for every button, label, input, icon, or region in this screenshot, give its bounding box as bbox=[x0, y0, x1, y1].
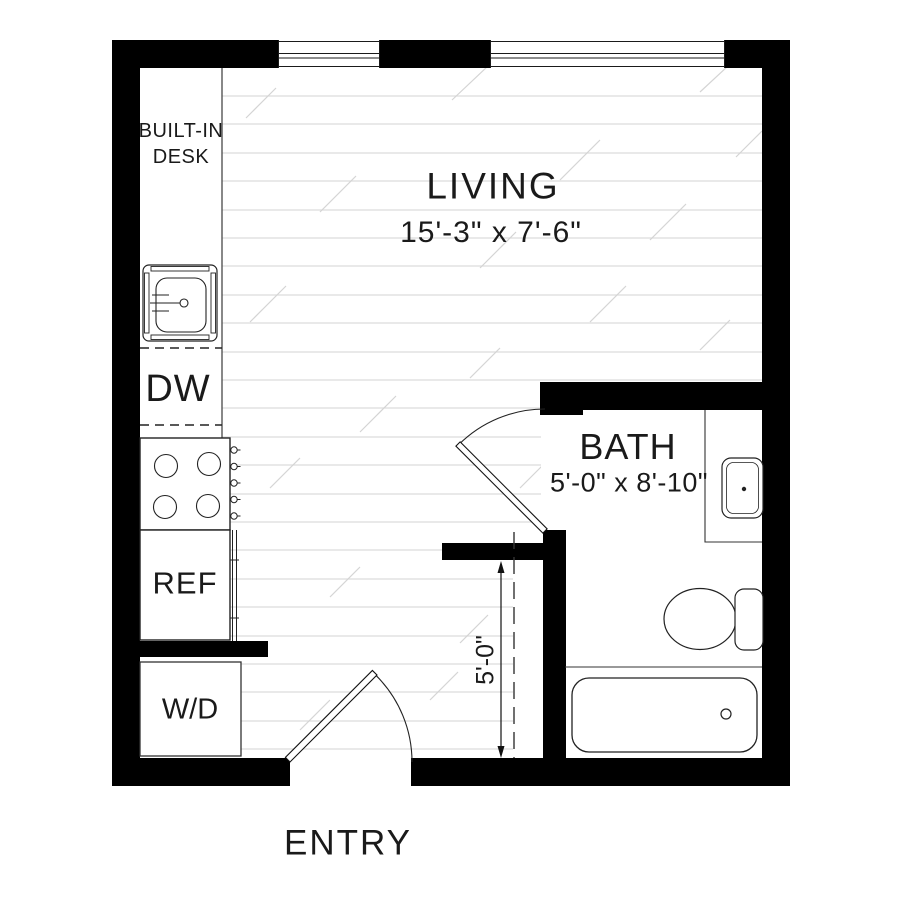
bathtub bbox=[572, 678, 757, 752]
toilet bbox=[664, 589, 763, 651]
window-left bbox=[278, 40, 380, 68]
dishwasher-label: DW bbox=[145, 370, 210, 408]
toilet-bowl bbox=[664, 589, 736, 650]
wall-top-mid bbox=[380, 40, 490, 68]
built-in-desk-label-line1: BUILT-IN bbox=[139, 121, 224, 141]
entry-door bbox=[285, 670, 412, 762]
dimension-arrow-down bbox=[498, 746, 505, 758]
kitchen-sink bbox=[143, 265, 217, 341]
window-right bbox=[490, 40, 725, 68]
wall-bottom-left bbox=[112, 758, 290, 786]
wall-bottom-right bbox=[411, 758, 790, 786]
bath-door bbox=[456, 409, 547, 533]
living-room-dimensions: 15'-3" x 7'-6" bbox=[400, 218, 582, 248]
floor-plan-drawing bbox=[0, 0, 900, 900]
entry-label: ENTRY bbox=[284, 826, 412, 861]
built-in-desk-label-line2: DESK bbox=[153, 147, 209, 167]
floor-plan: LIVING 15'-3" x 7'-6" BATH 5'-0" x 8'-10… bbox=[0, 0, 900, 900]
stove bbox=[140, 438, 241, 530]
refrigerator-label: REF bbox=[153, 568, 218, 599]
bath-door-swing-arc bbox=[459, 409, 545, 445]
vanity-faucet bbox=[742, 487, 746, 491]
dimension-arrow-up bbox=[498, 561, 505, 573]
wall-bath-stub bbox=[442, 543, 543, 560]
vanity-sink bbox=[722, 458, 763, 518]
wall-bath-west bbox=[543, 530, 566, 758]
stove-knobs bbox=[231, 447, 241, 519]
wall-left bbox=[112, 40, 140, 786]
entry-door-leaf bbox=[285, 670, 377, 762]
bath-room-label: BATH bbox=[579, 429, 676, 465]
dimension-label: 5'-0" bbox=[474, 635, 499, 685]
bath-door-leaf bbox=[456, 442, 547, 533]
living-room-label: LIVING bbox=[426, 168, 559, 205]
bath-room-dimensions: 5'-0" x 8'-10" bbox=[550, 470, 708, 497]
toilet-tank bbox=[735, 589, 763, 650]
wall-right bbox=[762, 40, 790, 786]
washer-dryer-label: W/D bbox=[162, 696, 218, 725]
wall-kitchen-return bbox=[112, 641, 268, 657]
wall-bath-north-jamb bbox=[540, 382, 583, 415]
